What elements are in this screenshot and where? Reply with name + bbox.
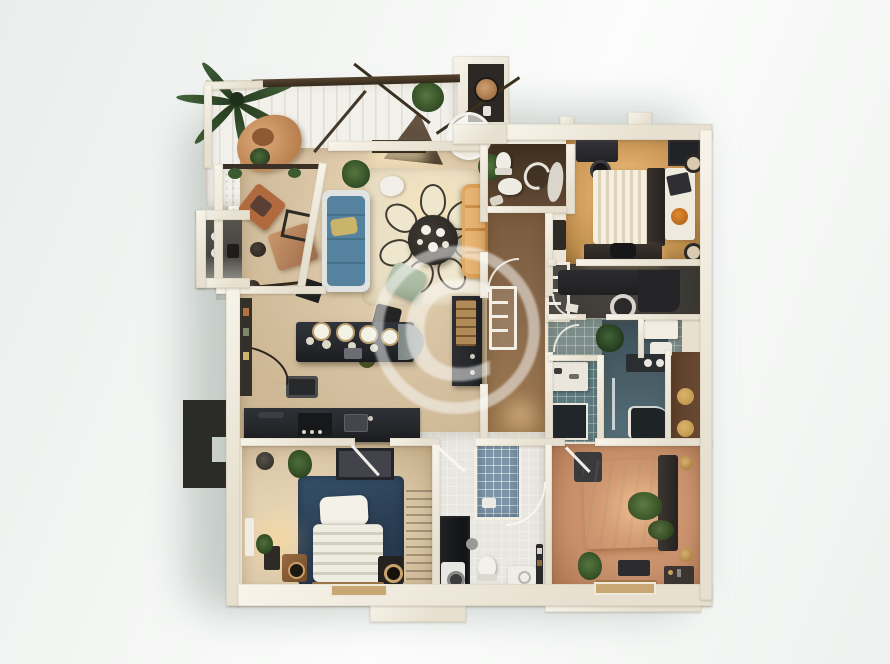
bath-right-tub [628,406,669,438]
terrace-wall-left [204,84,212,168]
office-bath-wall-b [606,314,702,320]
left-exterior-wall [226,284,240,606]
copyright-watermark: © [340,218,570,448]
bedroom1-office-wall [576,259,702,266]
bathroom-sink [508,566,536,586]
kitchen-left-shelf [240,298,252,396]
bedroom2-basket [256,452,274,470]
window-bench-left [330,584,388,597]
bath-right-counter [626,354,668,372]
linen-gold-mirror-2 [677,420,694,437]
bedroom2-plant-left [256,534,273,554]
mid-horizontal-wall-a [240,438,355,446]
bedroom1-bag [610,243,636,258]
terrace-wall-top-left [205,80,263,90]
bathroom-bucket [466,538,478,550]
floor-plan-render: © [0,0,890,664]
bedroom1-desk [576,138,618,162]
lounge-stool-1 [250,242,266,257]
lounge-rail-plant-2 [288,168,301,178]
island-bowl-2 [306,337,314,345]
vestibule-plant [596,324,624,352]
bathroom-shelf-pole [536,544,543,588]
closet-small-item [483,106,491,116]
bath-divider-v [597,355,604,444]
closet-basin [476,79,497,100]
bedroom2-pillow [319,495,369,527]
living-plant-1 [342,160,370,188]
master-tv-table [618,560,650,576]
bedroom1-bed-duvet [593,170,649,244]
dark-exterior-shape-lower [183,437,212,488]
top-exterior-wall [504,124,712,140]
lounge-wall-left [214,164,223,288]
bath-wardrobe-brown [406,488,434,580]
bedroom2-plant-top [288,450,312,478]
vestibule-divider-v [638,318,644,358]
master-bed-plant-2 [648,520,674,540]
master-nightstand-top [679,456,693,470]
island-plate-1 [312,322,331,341]
bathroom-toilet-tank [477,574,497,581]
master-nightstand-bottom [679,548,693,562]
terrace-plant-right [412,82,444,112]
bedroom2-wall-shelf [245,518,254,556]
bedroom2-speaker-left [282,554,307,582]
master-floor-plant [578,552,602,580]
kitchen-coffee-table [286,376,318,398]
mid-horizontal-wall-d [595,438,712,446]
bedroom1-orange-bowl [671,208,688,225]
bedroom2-duvet [313,524,383,582]
bedroom1-headboard [647,168,665,246]
wc-basin [498,178,522,195]
shower-tray-item [482,498,496,508]
bedroom2-speaker-right [378,556,403,584]
module-inner-left [196,210,206,288]
linen-gold-mirror-1 [677,388,694,405]
window-bench-right [594,582,656,595]
wc-toilet-tank [495,168,512,175]
lounge-rail-plant-1 [228,168,242,179]
terrace-lounge-cushion [252,128,274,146]
bath-glass-divider [612,378,615,430]
counter-utensils [258,412,284,418]
master-bed-plant-1 [628,492,662,520]
utility-dark-appliance [227,244,239,258]
linen-west-wall [665,350,671,444]
office-desk-return [638,270,680,312]
vestibule-cabinet [644,320,678,339]
island-bowl-1 [322,340,331,349]
closet-connector-wall [453,124,507,144]
right-exterior-wall [700,130,712,600]
